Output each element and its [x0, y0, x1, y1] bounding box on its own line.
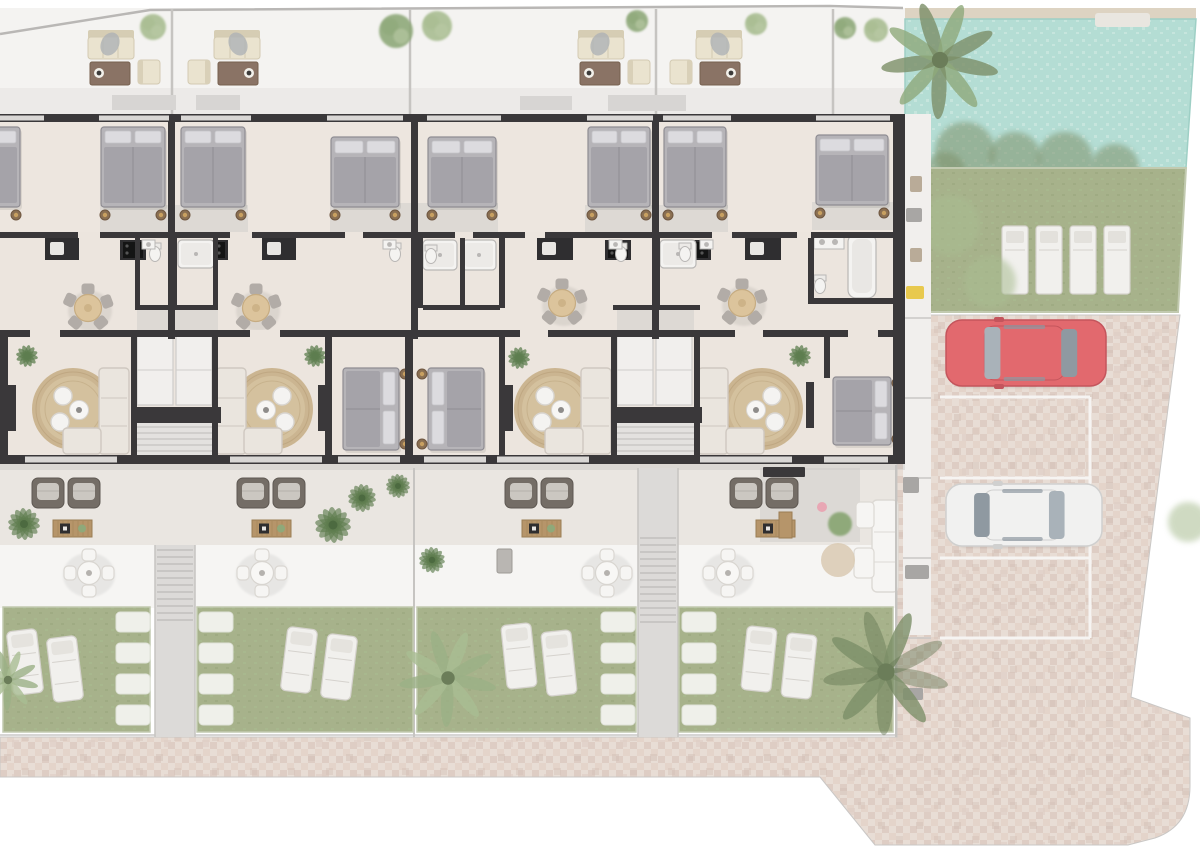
stepping-stone — [682, 612, 716, 632]
terrace-armchair — [766, 478, 798, 508]
window — [587, 116, 653, 121]
patio-item — [910, 176, 922, 192]
window — [663, 116, 731, 121]
planter-slab — [112, 95, 176, 110]
stepping-stone — [116, 705, 150, 725]
bed — [180, 127, 247, 220]
planter-slab — [520, 96, 572, 110]
pool-steps — [1095, 13, 1150, 27]
tree — [864, 18, 888, 42]
tv-unit — [505, 385, 513, 431]
stair-core — [137, 335, 215, 461]
window — [181, 116, 251, 121]
garden-lounger — [541, 630, 578, 697]
tv-unit — [806, 382, 814, 428]
stepping-stone — [199, 643, 233, 663]
window — [99, 116, 169, 121]
terrace-door — [824, 457, 888, 463]
stepping-stone — [116, 674, 150, 694]
terrace-armchair — [273, 478, 305, 508]
door-opening — [345, 232, 363, 238]
toilet — [679, 243, 691, 262]
door-opening — [525, 232, 545, 238]
terrace-armchair — [730, 478, 762, 508]
side-strip — [903, 114, 931, 700]
wood-table — [522, 520, 561, 537]
tree — [834, 17, 856, 39]
door-opening — [797, 232, 811, 238]
sun-lounger — [1036, 226, 1062, 294]
wood-table — [53, 520, 92, 537]
stepping-stone — [682, 674, 716, 694]
door-opening — [712, 232, 732, 238]
window — [816, 116, 890, 121]
terrace-door — [424, 457, 486, 463]
tv-unit — [318, 385, 326, 431]
stepping-stone — [116, 643, 150, 663]
terrace-armchair — [505, 478, 537, 508]
terrace-armchair — [68, 478, 100, 508]
window — [427, 116, 501, 121]
tree — [422, 11, 452, 41]
sink — [142, 240, 155, 249]
toilet — [814, 275, 826, 294]
stepping-stone — [116, 612, 150, 632]
patio-item — [906, 208, 922, 222]
yellow-lounger — [906, 286, 924, 299]
door-opening — [230, 232, 252, 238]
stepping-stone — [601, 705, 635, 725]
patio-item — [910, 248, 922, 262]
sink — [383, 240, 396, 249]
door-opening — [520, 330, 548, 337]
door-opening — [455, 232, 473, 238]
stepping-stone — [601, 612, 635, 632]
bed — [330, 137, 401, 220]
terrace-armchair — [237, 478, 269, 508]
tree — [626, 10, 648, 32]
garden-lounger — [781, 633, 818, 700]
door-opening — [30, 330, 60, 337]
shower-tray — [178, 240, 214, 268]
red-car — [946, 317, 1106, 389]
stepping-stone — [601, 674, 635, 694]
terrace-door — [497, 457, 589, 463]
terrace-armchair — [32, 478, 64, 508]
bed — [815, 135, 890, 218]
tree — [379, 14, 413, 48]
patio-item — [905, 565, 929, 579]
stepping-stone — [199, 705, 233, 725]
window — [327, 116, 403, 121]
garden-lounger — [501, 623, 538, 690]
tv-unit — [8, 385, 16, 431]
toilet — [425, 245, 437, 264]
white-car — [946, 481, 1102, 549]
bed — [343, 368, 410, 453]
bathtub — [848, 234, 876, 298]
terrace-door — [230, 457, 322, 463]
garden-stairs — [155, 545, 195, 737]
stair-core — [617, 335, 695, 461]
garden-lounger — [741, 626, 778, 693]
shower-tray — [462, 240, 496, 270]
sink — [700, 240, 713, 249]
kitchen-counter — [262, 238, 296, 260]
planter-slab — [196, 95, 240, 110]
stepping-stone — [199, 674, 233, 694]
sun-lounger — [1070, 226, 1096, 294]
garden-stairs — [638, 468, 678, 737]
terrace-armchair — [541, 478, 573, 508]
stepping-stone — [682, 643, 716, 663]
kitchen-counter — [45, 238, 79, 260]
stepping-stone — [199, 612, 233, 632]
tree — [745, 13, 767, 35]
window — [0, 116, 44, 121]
sun-lounger — [1104, 226, 1130, 294]
floor-plan-page — [0, 0, 1200, 850]
tree — [140, 14, 166, 40]
stepping-stone — [682, 705, 716, 725]
bed — [833, 377, 902, 448]
bed — [663, 127, 728, 220]
kitchen-counter — [537, 238, 573, 260]
bbq-grill — [497, 549, 512, 573]
bed — [100, 127, 167, 220]
planter-slab — [608, 95, 686, 111]
door-opening — [78, 232, 100, 238]
terrace-door — [25, 457, 117, 463]
bed — [587, 127, 652, 220]
kitchen-counter — [745, 238, 781, 260]
bed — [0, 127, 22, 220]
wood-table — [252, 520, 291, 537]
floor-plan-rendering — [0, 0, 1200, 850]
patio-item — [903, 477, 919, 493]
terrace-door — [338, 457, 400, 463]
door-opening — [250, 330, 280, 337]
door-opening — [735, 330, 763, 337]
stepping-stone — [601, 643, 635, 663]
door-opening — [848, 330, 878, 337]
terrace-door — [700, 457, 792, 463]
sink — [609, 240, 622, 249]
bed — [427, 137, 498, 220]
